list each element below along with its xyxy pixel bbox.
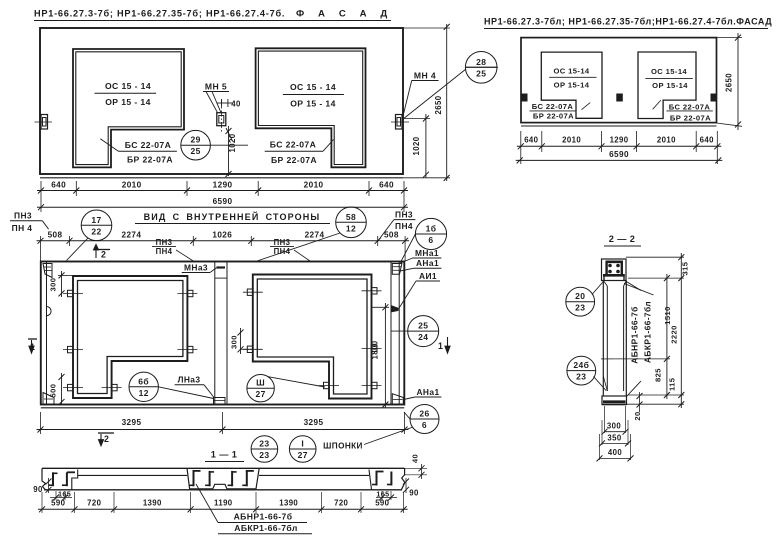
svg-text:БР 22-07А: БР 22-07А (670, 114, 711, 123)
svg-text:90: 90 (33, 485, 43, 494)
svg-text:БР 22-07А: БР 22-07А (271, 155, 317, 165)
svg-text:ШПОНКИ: ШПОНКИ (323, 441, 363, 450)
svg-text:6590: 6590 (609, 150, 629, 159)
svg-text:ОС 15-14: ОС 15-14 (553, 67, 589, 76)
svg-text:1510: 1510 (663, 306, 672, 325)
svg-text:1: 1 (438, 341, 443, 351)
svg-text:508: 508 (48, 231, 63, 240)
svg-text:ПН4: ПН4 (395, 221, 413, 231)
svg-text:40: 40 (231, 100, 241, 109)
svg-text:2010: 2010 (562, 136, 581, 145)
svg-text:3295: 3295 (122, 418, 142, 427)
svg-text:ОР 15-14: ОР 15-14 (652, 81, 688, 90)
svg-text:1290: 1290 (213, 180, 233, 189)
svg-text:2274: 2274 (121, 231, 141, 240)
svg-text:25: 25 (190, 146, 200, 156)
svg-text:6: 6 (428, 235, 433, 245)
svg-text:40: 40 (411, 454, 420, 463)
svg-text:ПН3: ПН3 (14, 211, 32, 221)
svg-text:МНа3: МНа3 (184, 263, 208, 273)
svg-text:2650: 2650 (434, 95, 443, 114)
svg-text:3295: 3295 (304, 418, 324, 427)
svg-text:ОР 15 - 14: ОР 15 - 14 (290, 99, 336, 109)
svg-text:1020: 1020 (228, 133, 237, 152)
svg-text:1020: 1020 (412, 136, 421, 155)
svg-text:ОС 15-14: ОС 15-14 (651, 67, 687, 76)
svg-text:27: 27 (255, 389, 265, 399)
svg-text:АНа1: АНа1 (416, 258, 439, 268)
svg-text:ОС 15 - 14: ОС 15 - 14 (105, 81, 151, 91)
svg-text:1026: 1026 (212, 231, 232, 240)
svg-text:27: 27 (298, 450, 308, 460)
svg-text:1б: 1б (426, 224, 437, 234)
svg-text:590: 590 (51, 499, 65, 508)
svg-text:25: 25 (476, 68, 486, 78)
svg-text:640: 640 (700, 136, 714, 145)
svg-text:28: 28 (476, 57, 486, 67)
svg-text:БС 22-07А: БС 22-07А (270, 140, 316, 150)
svg-text:2650: 2650 (725, 73, 734, 92)
svg-text:1190: 1190 (214, 499, 233, 508)
svg-text:115: 115 (668, 377, 677, 391)
svg-text:НР1-66.27.3-7бл; НР1-66.27.35-: НР1-66.27.3-7бл; НР1-66.27.35-7бл;НР1-66… (484, 17, 772, 27)
svg-text:2010: 2010 (122, 180, 142, 189)
svg-text:400: 400 (608, 448, 622, 457)
svg-text:АБКР1-66-7бл: АБКР1-66-7бл (643, 301, 653, 363)
svg-text:1800: 1800 (371, 340, 380, 359)
svg-text:720: 720 (334, 499, 348, 508)
svg-text:АНа1: АНа1 (416, 387, 439, 397)
svg-text:640: 640 (51, 180, 66, 189)
svg-text:315: 315 (681, 261, 690, 275)
svg-text:300: 300 (607, 422, 621, 431)
svg-text:26: 26 (419, 409, 429, 419)
svg-text:БС 22-07А: БС 22-07А (125, 140, 171, 150)
svg-text:ПН 4: ПН 4 (12, 223, 33, 233)
svg-text:500: 500 (49, 384, 58, 398)
svg-text:ПН3: ПН3 (395, 210, 413, 220)
svg-text:ОР 15-14: ОР 15-14 (554, 81, 590, 90)
svg-text:1 — 1: 1 — 1 (211, 450, 238, 460)
svg-text:20: 20 (633, 411, 642, 420)
svg-text:ПН4: ПН4 (274, 247, 291, 256)
svg-text:МНа1: МНа1 (415, 248, 439, 258)
svg-text:БС 22-07А: БС 22-07А (532, 102, 574, 111)
svg-text:24: 24 (418, 332, 428, 342)
svg-text:ПН4: ПН4 (156, 247, 173, 256)
svg-text:590: 590 (375, 499, 389, 508)
svg-text:ОР 15 - 14: ОР 15 - 14 (105, 97, 151, 107)
svg-text:НР1-66.27.3-7б; НР1-66.27.35-7: НР1-66.27.3-7б; НР1-66.27.35-7б; НР1-66.… (34, 9, 285, 19)
svg-text:6б: 6б (138, 376, 149, 386)
svg-text:БР 22-07А: БР 22-07А (533, 112, 574, 121)
svg-text:825: 825 (654, 368, 663, 382)
svg-text:МН 5: МН 5 (205, 82, 227, 92)
svg-text:90: 90 (409, 489, 419, 498)
svg-text:ЛНа3: ЛНа3 (178, 375, 201, 385)
svg-text:МН 4: МН 4 (414, 71, 436, 81)
svg-text:25: 25 (418, 321, 428, 331)
svg-text:АБНР1-66-7б: АБНР1-66-7б (234, 512, 293, 522)
svg-text:АБНР1-66-7б: АБНР1-66-7б (630, 306, 640, 363)
svg-text:300: 300 (230, 335, 239, 349)
svg-text:6590: 6590 (213, 197, 233, 206)
svg-text:БС 22-07А: БС 22-07А (669, 102, 711, 111)
svg-text:20: 20 (575, 291, 585, 301)
svg-text:ПН3: ПН3 (156, 238, 173, 247)
svg-text:БР 22-07А: БР 22-07А (127, 155, 173, 165)
svg-text:I: I (301, 439, 304, 449)
svg-text:6: 6 (422, 420, 427, 430)
svg-text:12: 12 (139, 388, 149, 398)
svg-text:2010: 2010 (304, 180, 324, 189)
svg-text:12: 12 (346, 223, 356, 233)
svg-text:АБКР1-66-7бл: АБКР1-66-7бл (234, 523, 298, 533)
svg-text:58: 58 (346, 212, 356, 222)
svg-text:29: 29 (190, 135, 200, 145)
svg-text:508: 508 (384, 231, 399, 240)
svg-text:22: 22 (91, 226, 101, 236)
svg-text:Ш: Ш (256, 378, 265, 388)
svg-text:24б: 24б (573, 360, 589, 370)
svg-text:23: 23 (576, 372, 586, 382)
svg-text:17: 17 (91, 215, 101, 225)
svg-text:Ф А С А Д: Ф А С А Д (296, 9, 393, 20)
svg-text:720: 720 (87, 499, 101, 508)
svg-text:2: 2 (104, 434, 109, 444)
svg-text:АИ1: АИ1 (419, 271, 437, 281)
svg-text:350: 350 (607, 434, 621, 443)
svg-text:300: 300 (49, 278, 58, 292)
svg-text:2 — 2: 2 — 2 (609, 234, 636, 244)
svg-text:ВИД С ВНУТРЕННЕЙ СТОРОНЫ: ВИД С ВНУТРЕННЕЙ СТОРОНЫ (144, 211, 321, 222)
svg-text:2: 2 (101, 250, 106, 260)
svg-text:1290: 1290 (610, 136, 629, 145)
svg-text:23: 23 (259, 439, 269, 449)
svg-text:23: 23 (259, 450, 269, 460)
svg-text:640: 640 (379, 180, 394, 189)
svg-text:23: 23 (575, 303, 585, 313)
svg-text:640: 640 (524, 136, 538, 145)
svg-text:1390: 1390 (143, 499, 162, 508)
svg-text:2220: 2220 (670, 325, 679, 344)
svg-text:ПН3: ПН3 (274, 238, 291, 247)
svg-text:2274: 2274 (305, 231, 325, 240)
svg-text:1390: 1390 (279, 499, 298, 508)
svg-text:2010: 2010 (657, 136, 676, 145)
svg-text:ОС 15 - 14: ОС 15 - 14 (290, 82, 336, 92)
